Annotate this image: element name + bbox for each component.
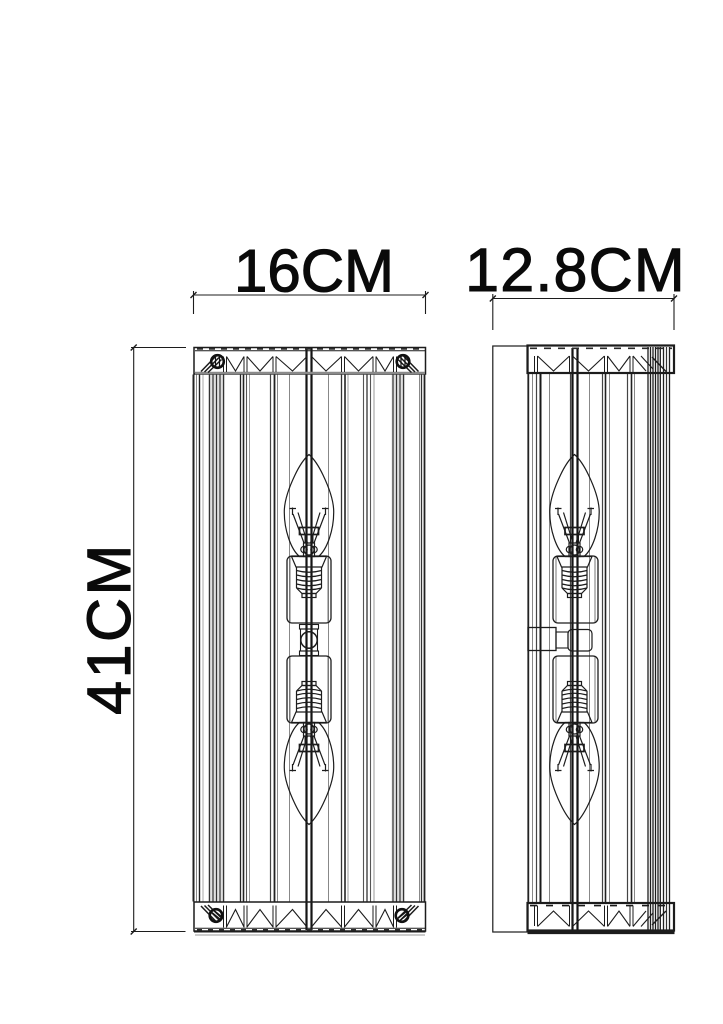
svg-text:41CM: 41CM (75, 542, 143, 715)
svg-text:12.8CM: 12.8CM (465, 236, 686, 304)
